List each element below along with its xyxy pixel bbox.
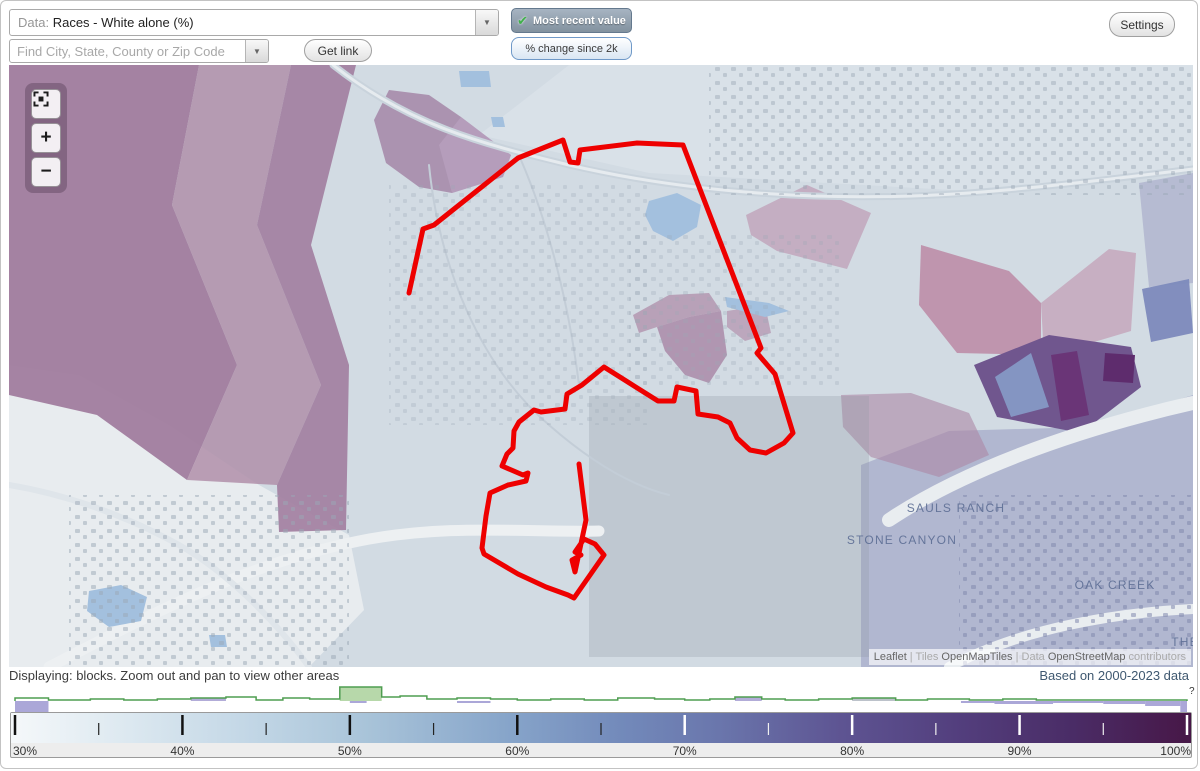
attribution-part: OpenStreetMap — [1048, 651, 1126, 663]
region-gray-overlay-rect — [589, 396, 869, 657]
houses-texture-0 — [69, 495, 349, 667]
hist-bar-below — [457, 701, 490, 703]
map-attribution: Leaflet | Tiles OpenMapTiles | Data Open… — [869, 649, 1191, 665]
gradient-tick-label: 70% — [673, 744, 697, 757]
hist-bar-below — [1053, 701, 1103, 703]
fullscreen-icon — [32, 90, 50, 108]
histogram-help-mark[interactable]: ? — [1189, 686, 1195, 697]
gradient-tick-label: 50% — [338, 744, 362, 757]
data-note: Based on 2000-2023 data — [1039, 668, 1189, 683]
place-label: SAULS RANCH — [907, 501, 1006, 515]
houses-texture-2 — [389, 185, 649, 425]
hist-bar-below — [1103, 701, 1145, 704]
hist-bar-below — [994, 701, 1053, 704]
gradient-tick-label: 40% — [170, 744, 194, 757]
place-label: THE — [1171, 635, 1193, 649]
attribution-part: | — [1013, 651, 1022, 663]
legend-gradient-box: 30%40%50%60%70%80%90%100% — [10, 712, 1192, 758]
app-window: Data: Races - White alone (%) ▼ ▼ Get li… — [0, 0, 1198, 769]
attribution-part: contributors — [1125, 651, 1186, 663]
settings-button[interactable]: Settings — [1109, 12, 1175, 37]
zoom-out-button[interactable]: − — [31, 157, 61, 187]
gradient-tick-label: 60% — [505, 744, 529, 757]
gradient-tick-label: 100% — [1160, 744, 1191, 757]
most-recent-value-button[interactable]: ✔ Most recent value — [511, 8, 632, 33]
fullscreen-button[interactable] — [31, 89, 61, 119]
check-icon: ✔ — [517, 13, 528, 29]
data-select-value: Races - White alone (%) — [53, 15, 194, 30]
pct-change-button[interactable]: % change since 2k — [511, 37, 632, 60]
hist-bar-below — [1145, 701, 1180, 706]
find-location-input[interactable] — [10, 44, 245, 59]
map-canvas[interactable]: SAULS RANCHSTONE CANYONOAK CREEKTHE + − … — [9, 65, 1193, 667]
water-pond-top — [459, 71, 491, 87]
water-pond-tiny-top — [491, 117, 505, 127]
attribution-part: Tiles — [916, 651, 942, 663]
map-controls: + − — [25, 83, 67, 193]
map-svg: SAULS RANCHSTONE CANYONOAK CREEKTHE — [9, 65, 1193, 667]
houses-texture-3 — [629, 235, 839, 385]
gradient-tick-label: 30% — [13, 744, 37, 757]
chevron-down-icon: ▼ — [253, 47, 261, 56]
get-link-button[interactable]: Get link — [304, 39, 372, 62]
hist-green-outline — [15, 687, 1187, 701]
attribution-part: | — [907, 651, 916, 663]
hist-bar-below — [961, 701, 994, 703]
gradient-tick-label: 90% — [1008, 744, 1032, 757]
legend-gradient-svg: 30%40%50%60%70%80%90%100% — [11, 713, 1191, 757]
region-bluepurple-patch — [1142, 279, 1193, 342]
hist-bar-below — [350, 701, 367, 703]
zoom-in-button[interactable]: + — [31, 123, 61, 153]
find-location-arrow-button[interactable]: ▼ — [245, 40, 268, 62]
region-stripe-rect — [1103, 353, 1135, 383]
data-select[interactable]: Data: Races - White alone (%) ▼ — [9, 9, 499, 36]
legend-histogram — [11, 685, 1191, 713]
gradient-tick-label: 80% — [840, 744, 864, 757]
attribution-part: Data — [1022, 651, 1048, 663]
chevron-down-icon: ▼ — [483, 18, 491, 27]
data-select-text: Data: Races - White alone (%) — [10, 15, 475, 30]
attribution-part: Leaflet — [874, 651, 907, 663]
find-location-box: ▼ — [9, 39, 269, 63]
houses-texture-1 — [709, 65, 1193, 195]
most-recent-value-label: Most recent value — [533, 15, 626, 27]
place-label: STONE CANYON — [847, 533, 957, 547]
place-label: OAK CREEK — [1075, 578, 1156, 592]
status-line: Displaying: blocks. Zoom out and pan to … — [9, 668, 339, 683]
data-select-prefix: Data: — [18, 15, 49, 30]
hist-peak-fill — [340, 687, 382, 701]
data-select-arrow-button[interactable]: ▼ — [475, 10, 498, 35]
attribution-part: OpenMapTiles — [941, 651, 1012, 663]
